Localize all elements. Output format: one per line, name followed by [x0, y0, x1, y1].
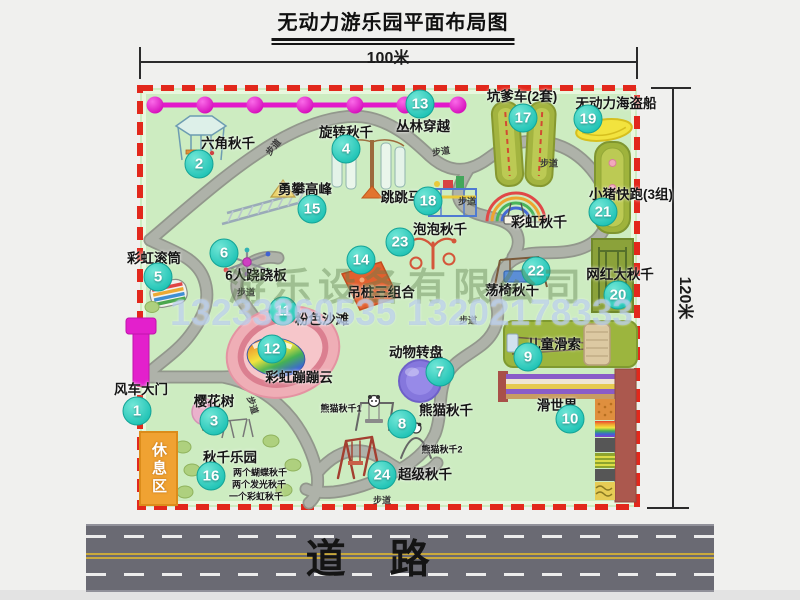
width-dimension-label: 100米: [367, 44, 410, 68]
page-title: 无动力游乐园平面布局图: [272, 6, 515, 41]
road-label: 道 路: [306, 527, 432, 585]
rest-area-label: 休息区: [148, 442, 169, 496]
height-dimension-label: 120米: [675, 277, 699, 320]
piggy-run-track-structure: [595, 142, 630, 233]
road: 道 路: [86, 524, 714, 592]
rest-area: 休息区: [139, 431, 178, 506]
animal-carousel-structure: [399, 360, 441, 402]
watermark-phone: 13233860535 13202178333: [170, 292, 633, 334]
playground-map-screenshot: 无动力游乐园平面布局图 100米 120米: [0, 0, 800, 600]
